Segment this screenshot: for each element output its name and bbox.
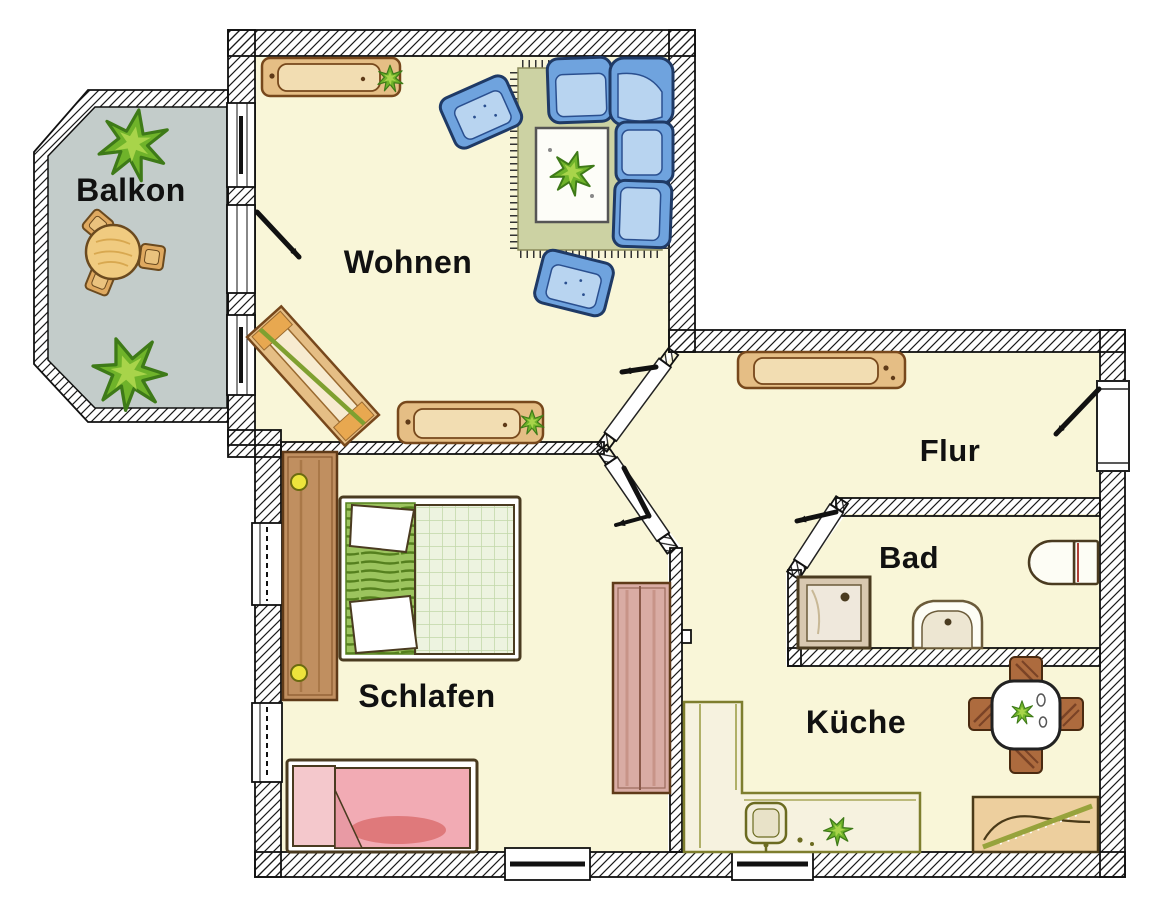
lowboard-bottom	[398, 402, 544, 443]
balcony-window-top	[227, 103, 255, 187]
knob	[291, 665, 307, 681]
floor-plan-svg: Balkon Wohnen Flur Bad Schlafen Küche	[0, 0, 1152, 915]
single-bed	[287, 760, 477, 852]
double-bed	[340, 497, 520, 660]
wall-flur-top	[669, 330, 1125, 352]
schlafen-window-bottom	[252, 703, 282, 782]
wall-bad-bottom	[788, 648, 1100, 666]
bench	[973, 797, 1098, 852]
wall-top	[228, 30, 695, 56]
label-flur: Flur	[920, 433, 981, 468]
pillow	[293, 766, 335, 846]
washbasin	[913, 601, 982, 648]
schlafen-bottom-window	[505, 848, 590, 880]
knob	[291, 474, 307, 490]
label-balkon: Balkon	[76, 172, 186, 208]
wall-schlafen-kueche	[670, 548, 682, 852]
shower	[798, 577, 870, 648]
wall-notch	[682, 630, 691, 643]
sideboard-top	[262, 58, 403, 96]
balcony-window-bottom	[227, 315, 255, 395]
schlafen-window-top	[252, 523, 282, 605]
coffee-table	[536, 128, 608, 222]
wardrobe	[283, 452, 337, 700]
pillow	[350, 596, 417, 653]
wall-left-lower	[255, 445, 281, 877]
flur-furniture	[738, 352, 905, 388]
sideboard-flur	[738, 352, 905, 388]
wall-bottom	[255, 852, 1125, 877]
wall-bad-top	[836, 498, 1100, 516]
tall-cabinet	[613, 583, 670, 793]
label-schlafen: Schlafen	[358, 678, 495, 714]
label-wohnen: Wohnen	[344, 244, 473, 280]
label-kueche: Küche	[806, 704, 906, 740]
balcony-table	[86, 225, 140, 279]
pillow	[350, 505, 414, 552]
toilet	[1029, 541, 1098, 584]
floor-plan-canvas: Balkon Wohnen Flur Bad Schlafen Küche	[0, 0, 1152, 915]
label-bad: Bad	[879, 540, 939, 575]
stool-icon	[138, 243, 165, 270]
